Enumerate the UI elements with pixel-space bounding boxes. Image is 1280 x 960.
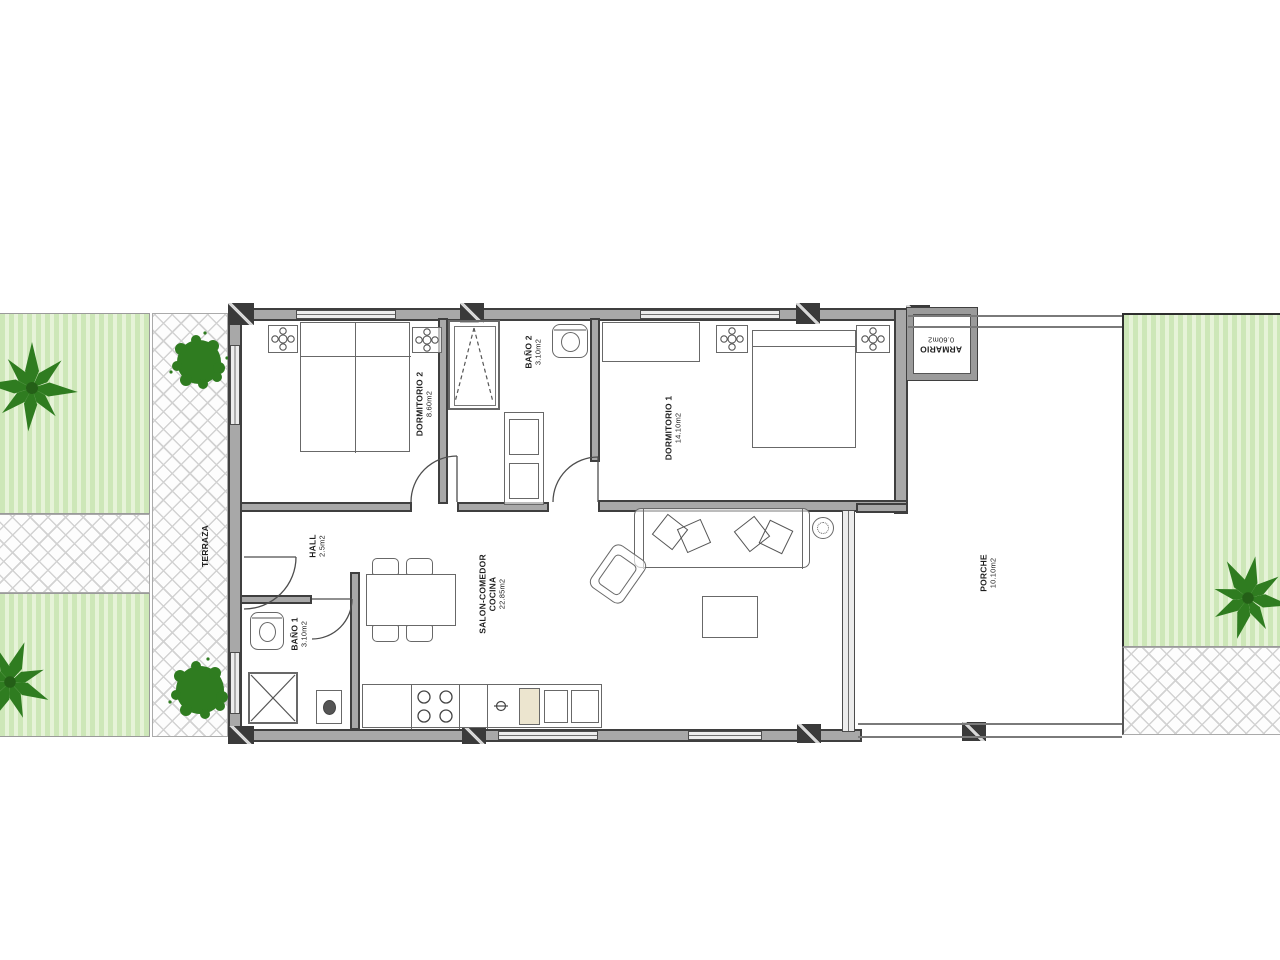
label-terraza: TERRAZA bbox=[200, 525, 210, 567]
plant-icon bbox=[272, 328, 884, 351]
label-salon: SALON-COMEDOR COCINA 22.85m2 bbox=[477, 554, 506, 634]
room-name: HALL bbox=[307, 534, 317, 557]
entry-door bbox=[244, 557, 296, 609]
room-name: BAÑO 1 bbox=[289, 617, 299, 650]
label-bano2: BAÑO 2 3.10m2 bbox=[523, 335, 542, 368]
room-name: TERRAZA bbox=[200, 525, 210, 567]
dorm2-door bbox=[411, 456, 457, 502]
plan-detail-overlay bbox=[0, 0, 1280, 960]
room-name: DORMITORIO 1 bbox=[663, 396, 673, 461]
floor-plan-canvas: DORMITORIO 2 8.60m2 BAÑO 2 3.10m2 DORMIT… bbox=[0, 0, 1280, 960]
shower1-lines bbox=[251, 675, 295, 721]
room-name: PORCHE bbox=[978, 554, 988, 592]
room-area: 0.60m2 bbox=[920, 335, 962, 344]
shower2-lines bbox=[455, 328, 493, 402]
dorm1-door bbox=[553, 457, 598, 502]
label-bano1: BAÑO 1 3.10m2 bbox=[289, 617, 308, 650]
kitchen-sink bbox=[494, 702, 508, 711]
room-area: 10.10m2 bbox=[989, 554, 998, 592]
room-area: 8.60m2 bbox=[425, 372, 434, 437]
room-area: 14.10m2 bbox=[674, 396, 683, 461]
stove-burners bbox=[418, 691, 452, 722]
room-area: 3.10m2 bbox=[300, 617, 309, 650]
room-name2: COCINA bbox=[488, 554, 498, 634]
room-name: DORMITORIO 2 bbox=[414, 372, 424, 437]
room-area: 22.85m2 bbox=[498, 554, 507, 634]
label-dormitorio1: DORMITORIO 1 14.10m2 bbox=[663, 396, 682, 461]
room-name: SALON-COMEDOR bbox=[477, 554, 487, 634]
label-armario: ARMARIO 0.60m2 bbox=[920, 335, 962, 354]
room-area: 2.5m2 bbox=[318, 534, 327, 557]
room-name: ARMARIO bbox=[920, 344, 962, 354]
label-hall: HALL 2.5m2 bbox=[307, 534, 326, 557]
bano1-door bbox=[312, 599, 352, 639]
room-name: BAÑO 2 bbox=[523, 335, 533, 368]
label-dormitorio2: DORMITORIO 2 8.60m2 bbox=[414, 372, 433, 437]
room-area: 3.10m2 bbox=[534, 335, 543, 368]
label-porche: PORCHE 10.10m2 bbox=[978, 554, 997, 592]
